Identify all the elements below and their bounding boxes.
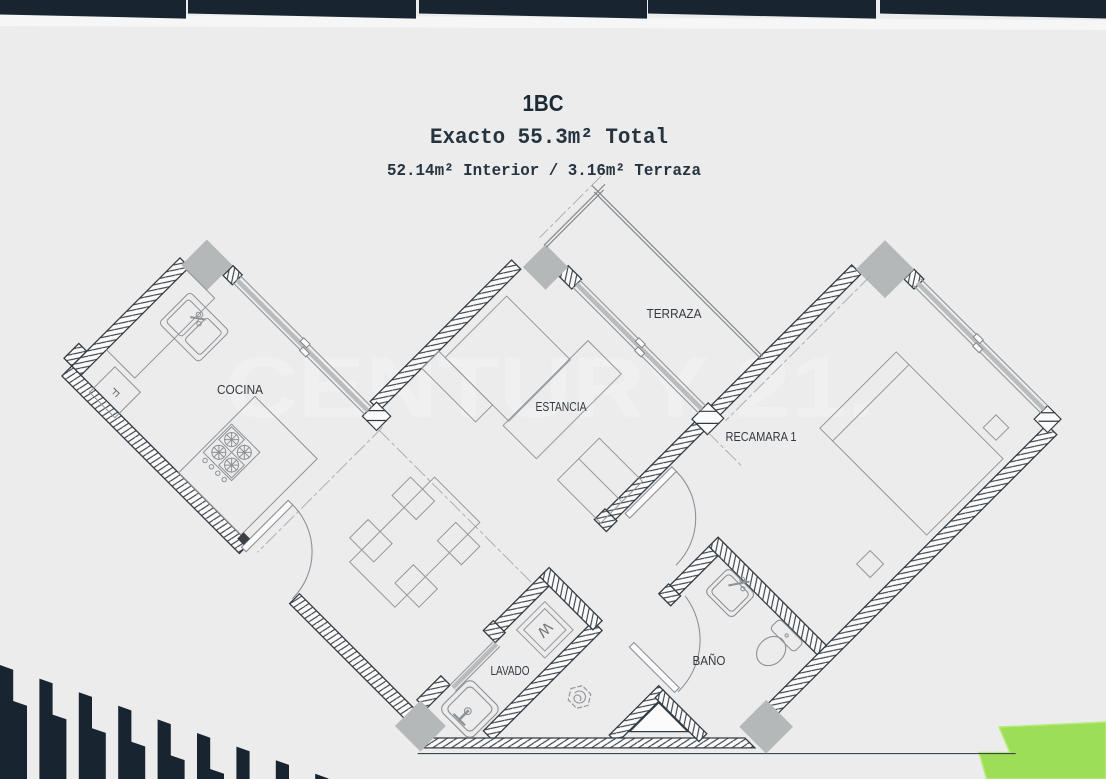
svg-text:TERRAZA: TERRAZA [647, 307, 703, 321]
svg-text:RECAMARA 1: RECAMARA 1 [726, 430, 797, 444]
svg-text:52.14m² Interior / 3.16m² Terr: 52.14m² Interior / 3.16m² Terraza [387, 162, 701, 181]
svg-text:1BC: 1BC [523, 90, 564, 116]
svg-text:COCINA: COCINA [217, 383, 264, 397]
svg-text:ESTANCIA: ESTANCIA [536, 400, 588, 414]
svg-text:LAVADO: LAVADO [491, 664, 530, 678]
svg-text:BAÑO: BAÑO [693, 654, 726, 668]
svg-text:Exacto 55.3m² Total: Exacto 55.3m² Total [430, 125, 668, 150]
